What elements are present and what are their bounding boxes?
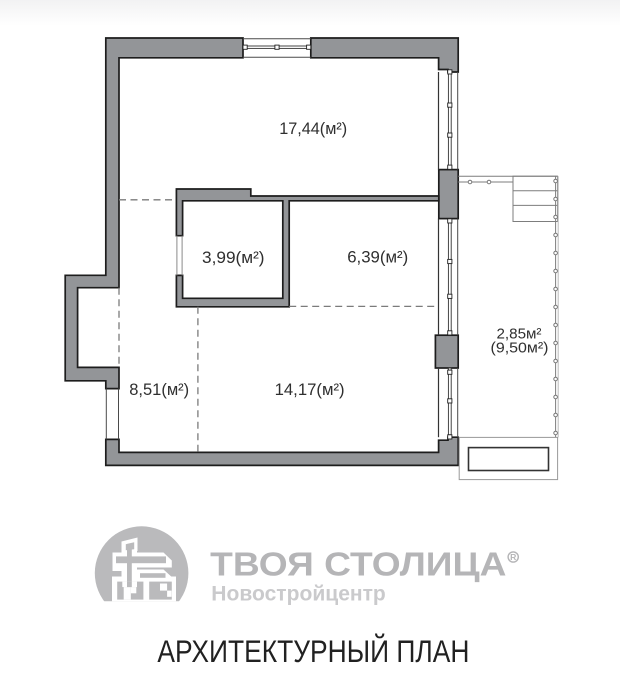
svg-text:R: R xyxy=(510,552,517,562)
svg-text:8,51(м²): 8,51(м²) xyxy=(129,380,189,399)
svg-text:3,99(м²): 3,99(м²) xyxy=(202,248,265,267)
svg-text:14,17(м²): 14,17(м²) xyxy=(275,380,345,399)
svg-text:АРХИТЕКТУРНЫЙ ПЛАН: АРХИТЕКТУРНЫЙ ПЛАН xyxy=(157,633,469,669)
svg-text:ТВОЯ СТОЛИЦА: ТВОЯ СТОЛИЦА xyxy=(210,546,506,583)
svg-text:6,39(м²): 6,39(м²) xyxy=(347,248,408,267)
svg-text:Новостройцентр: Новостройцентр xyxy=(211,581,385,605)
svg-text:(9,50м²): (9,50м²) xyxy=(491,340,549,357)
svg-text:17,44(м²): 17,44(м²) xyxy=(279,119,347,138)
